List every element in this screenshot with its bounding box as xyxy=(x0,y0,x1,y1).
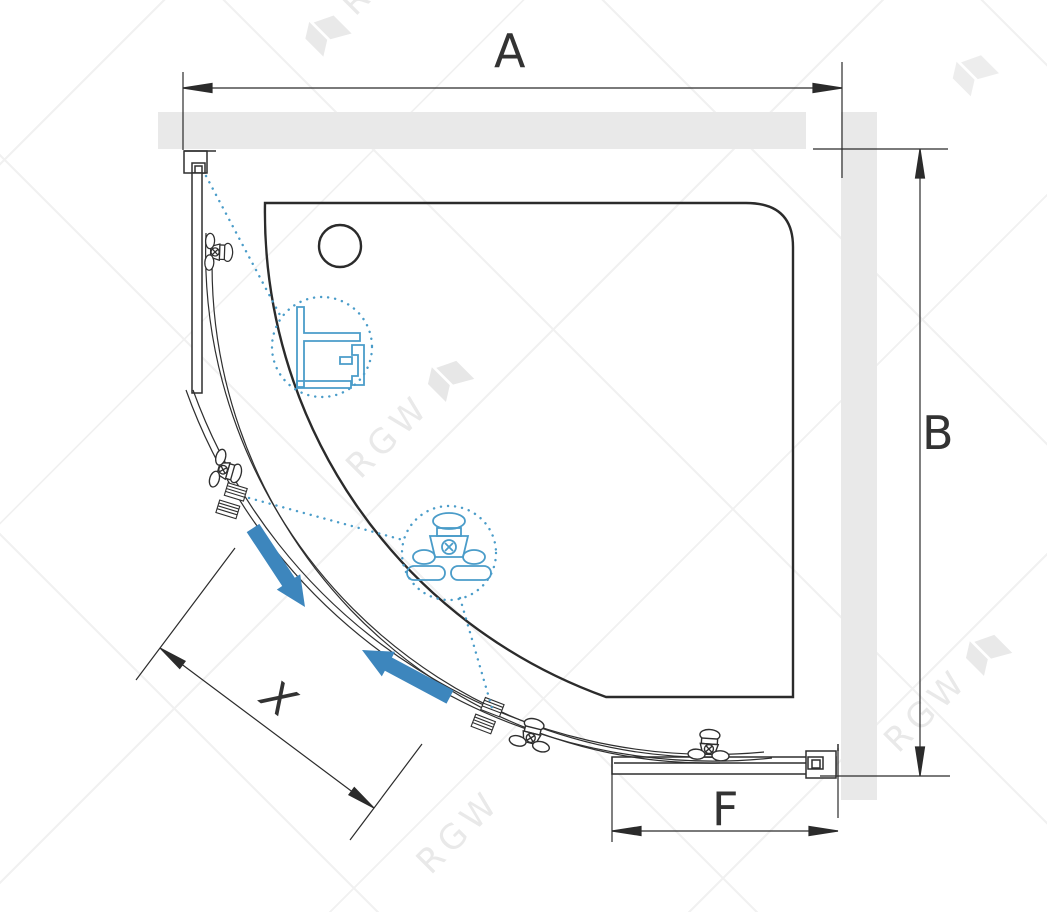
wall-top xyxy=(158,112,806,149)
left-fixed-panel xyxy=(184,151,216,393)
roller-detail-callout xyxy=(402,506,496,600)
arrow-up-left xyxy=(362,650,454,704)
dimension-label-f: F xyxy=(712,786,738,832)
detail-leader-lines xyxy=(206,176,492,708)
diagram-linework xyxy=(0,0,1047,912)
shower-enclosure-diagram: RGW RGW RGW RGW xyxy=(0,0,1047,912)
dimension-b xyxy=(813,149,950,776)
wall-right xyxy=(841,112,877,800)
door-roller xyxy=(508,714,555,754)
door-roller xyxy=(205,233,234,271)
dimension-label-a: A xyxy=(494,28,525,74)
drain-circle xyxy=(319,225,361,267)
door-handle xyxy=(216,482,247,519)
wall-profile-detail-callout xyxy=(272,297,372,397)
dimension-label-b: B xyxy=(922,410,954,456)
